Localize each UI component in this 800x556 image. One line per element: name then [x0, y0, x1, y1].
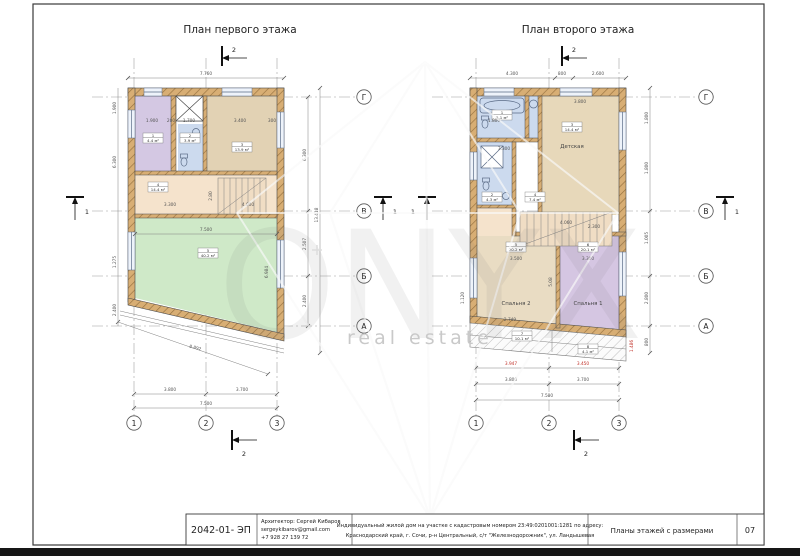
room-label-r4: 4 14.4 м²: [148, 182, 168, 192]
svg-text:3: 3: [275, 419, 280, 428]
room-name-child: Детская: [560, 144, 583, 150]
svg-text:3.300: 3.300: [164, 202, 177, 208]
svg-text:2.600: 2.600: [592, 71, 605, 77]
svg-text:7.500: 7.500: [200, 227, 213, 233]
svg-text:4.4 м²: 4.4 м²: [147, 138, 159, 143]
room-label-r2: 2 3.9 м²: [180, 133, 200, 143]
room-label-r5: 5 40.2 м²: [198, 248, 218, 258]
svg-text:3.800: 3.800: [164, 387, 177, 393]
architect-name: Архитектор: Сергей Кибаров: [261, 518, 341, 525]
svg-text:800: 800: [644, 338, 650, 346]
svg-text:1: 1: [132, 419, 137, 428]
architect-email: sergeykibarov@gmail.com: [261, 527, 330, 533]
svg-text:40.2 м²: 40.2 м²: [201, 253, 216, 258]
svg-text:300: 300: [268, 118, 276, 124]
svg-text:Г: Г: [704, 93, 709, 102]
section-1-left: 1: [85, 208, 89, 216]
drawing-sheet: План первого этажа План второго этажа: [0, 0, 800, 556]
sheet-name: Планы этажей с размерами: [611, 527, 714, 535]
room2-niche: [529, 96, 538, 138]
svg-text:1.800: 1.800: [644, 112, 650, 125]
svg-text:Б: Б: [703, 272, 708, 281]
svg-text:2.80: 2.80: [208, 191, 214, 201]
svg-text:3.700: 3.700: [577, 377, 590, 383]
svg-text:6.300: 6.300: [112, 156, 118, 169]
svg-text:7.760: 7.760: [200, 71, 213, 77]
svg-text:1.700: 1.700: [183, 118, 196, 124]
architect-phone: +7 928 27 139 72: [261, 535, 308, 541]
svg-text:3.9 м²: 3.9 м²: [184, 138, 196, 143]
vent-shaft: [176, 96, 203, 121]
svg-text:1.900: 1.900: [146, 118, 159, 124]
svg-text:14.4 м²: 14.4 м²: [151, 187, 166, 192]
watermark-sub: real estate: [347, 327, 493, 349]
room1-bedroom: [207, 96, 277, 171]
svg-text:А: А: [703, 322, 709, 331]
svg-text:2.800: 2.800: [644, 292, 650, 305]
svg-text:1.005: 1.005: [644, 232, 650, 245]
svg-text:7.500: 7.500: [541, 393, 554, 399]
svg-text:800: 800: [558, 71, 566, 77]
svg-text:1.275: 1.275: [112, 256, 118, 269]
svg-text:14.4 м²: 14.4 м²: [565, 127, 580, 132]
section-2-top: 2: [232, 46, 236, 54]
svg-text:13.9 м²: 13.9 м²: [235, 147, 250, 152]
svg-text:Г: Г: [362, 93, 367, 102]
project-code: 2042-01- ЭП: [191, 525, 251, 536]
plan2-title: План второго этажа: [522, 24, 635, 36]
svg-text:3.300: 3.300: [498, 146, 511, 152]
svg-text:1: 1: [474, 419, 479, 428]
project-desc-line1: Индивидуальный жилой дом на участке с ка…: [337, 522, 604, 529]
svg-text:1.900: 1.900: [112, 102, 118, 115]
sheet-number: 07: [745, 526, 755, 535]
svg-text:3.800: 3.800: [574, 99, 587, 105]
room2-child: [542, 96, 619, 215]
scan-edge-bottom: [0, 548, 800, 556]
plan1-title: План первого этажа: [183, 24, 296, 36]
title-block: 2042-01- ЭП Архитектор: Сергей Кибаров s…: [186, 514, 764, 545]
room-label-r1: 1 4.4 м²: [143, 133, 163, 143]
svg-text:3.700: 3.700: [236, 387, 249, 393]
section-2-top-p2: 2: [572, 46, 576, 54]
svg-text:В: В: [703, 207, 708, 216]
room-label-r3: 3 13.9 м²: [232, 142, 252, 152]
svg-text:2.400: 2.400: [112, 304, 118, 317]
section-1-right-p2: 1: [735, 208, 739, 216]
svg-text:2: 2: [547, 419, 552, 428]
project-desc-line2: Краснодарский край, г. Сочи, р-н Централ…: [346, 532, 595, 539]
section-2-bottom: 2: [242, 450, 246, 458]
svg-text:1.800: 1.800: [644, 162, 650, 175]
svg-text:4.300: 4.300: [506, 71, 519, 77]
svg-text:7.500: 7.500: [200, 401, 213, 407]
svg-text:200: 200: [167, 118, 175, 124]
svg-text:3: 3: [617, 419, 622, 428]
svg-text:3.400: 3.400: [234, 118, 247, 124]
svg-text:2: 2: [204, 419, 209, 428]
section-2-bottom-p2: 2: [584, 450, 588, 458]
